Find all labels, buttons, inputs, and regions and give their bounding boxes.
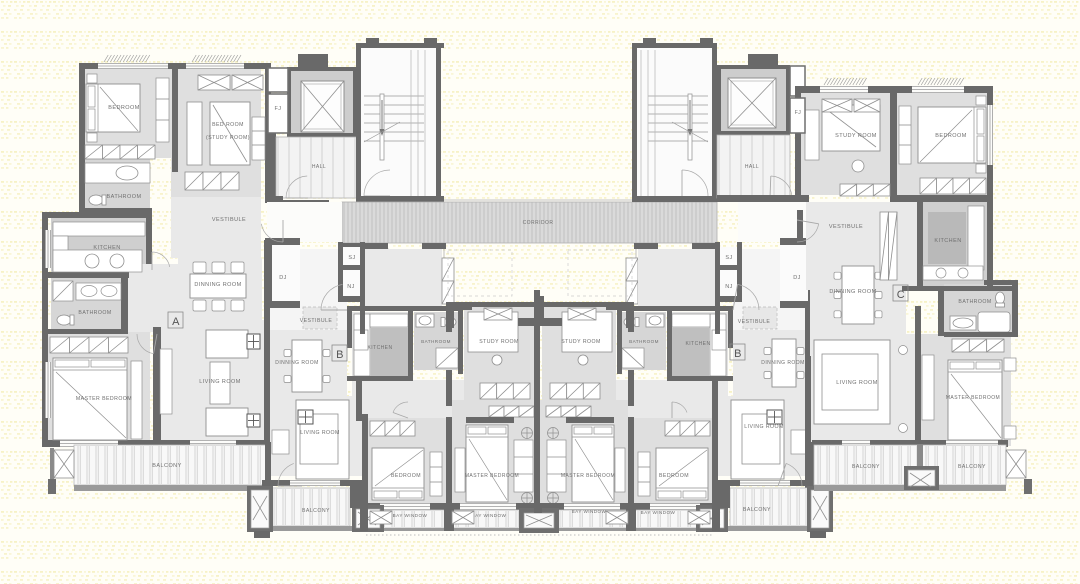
svg-text:DINNING ROOM: DINNING ROOM [761,360,804,366]
svg-text:BAY WINDOW: BAY WINDOW [393,513,428,518]
svg-text:(STUDY ROOM): (STUDY ROOM) [206,135,250,141]
svg-text:BALCONY: BALCONY [852,464,880,470]
svg-text:C: C [897,289,905,301]
svg-text:STUDY ROOM: STUDY ROOM [561,339,601,345]
svg-text:KITCHEN: KITCHEN [367,345,392,351]
svg-text:BAY WINDOW: BAY WINDOW [572,509,607,514]
svg-text:KITCHEN: KITCHEN [685,341,710,347]
svg-text:HALL: HALL [745,164,759,170]
svg-text:MASTER BEDROOM: MASTER BEDROOM [76,396,132,402]
svg-text:DINNING ROOM: DINNING ROOM [194,282,241,288]
svg-text:STUDY ROOM: STUDY ROOM [479,339,519,345]
svg-text:DINNING ROOM: DINNING ROOM [275,360,318,366]
svg-text:DJ: DJ [793,275,801,281]
svg-text:VESTIBULE: VESTIBULE [300,318,333,324]
svg-text:BATHROOM: BATHROOM [958,299,991,305]
svg-text:NJ: NJ [725,284,733,290]
svg-text:STUDY ROOM: STUDY ROOM [835,133,877,139]
svg-text:SJ: SJ [725,255,732,261]
svg-text:DJ: DJ [279,275,287,281]
svg-text:BEDROOM: BEDROOM [659,473,689,479]
svg-text:MASTER BEDROOM: MASTER BEDROOM [561,473,615,479]
svg-text:VESTIBULE: VESTIBULE [829,224,863,230]
svg-text:FJ: FJ [795,110,802,116]
svg-text:MASTER BEDROOM: MASTER BEDROOM [465,473,519,479]
svg-text:B: B [336,349,344,361]
svg-text:BALCONY: BALCONY [743,507,771,513]
svg-text:BALCONY: BALCONY [958,464,986,470]
svg-text:SJ: SJ [348,255,355,261]
svg-text:MASTER BEDROOM: MASTER BEDROOM [946,395,1000,401]
svg-text:KITCHEN: KITCHEN [934,238,961,244]
svg-text:BALCONY: BALCONY [302,508,330,514]
svg-text:LIVING ROOM: LIVING ROOM [199,379,241,385]
svg-text:BEDROOM: BEDROOM [935,133,967,139]
svg-text:NJ: NJ [347,284,355,290]
svg-text:A: A [172,316,180,328]
svg-text:DINNING ROOM: DINNING ROOM [829,289,876,295]
svg-text:LIVING ROOM: LIVING ROOM [836,380,878,386]
svg-text:HALL: HALL [312,164,326,170]
svg-text:BATHROOM: BATHROOM [107,194,142,200]
svg-text:KITCHEN: KITCHEN [93,245,120,251]
svg-text:B: B [734,348,742,360]
svg-text:LIVING ROOM: LIVING ROOM [744,424,784,430]
svg-text:CORRIDOR: CORRIDOR [523,220,554,226]
svg-text:BED ROOM: BED ROOM [212,122,244,128]
svg-text:FJ: FJ [274,106,281,112]
svg-text:BALCONY: BALCONY [152,463,181,469]
svg-text:LIVING ROOM: LIVING ROOM [300,430,340,436]
svg-text:BAY WINDOW: BAY WINDOW [472,513,507,518]
svg-text:VESTIBULE: VESTIBULE [212,217,246,223]
svg-text:BATHROOM: BATHROOM [421,339,451,344]
svg-text:BATHROOM: BATHROOM [78,310,111,316]
svg-text:BEDROOM: BEDROOM [391,473,421,479]
svg-text:BEDROOM: BEDROOM [108,105,140,111]
svg-text:BATHROOM: BATHROOM [629,339,659,344]
svg-text:BAY WINDOW: BAY WINDOW [641,510,676,515]
svg-text:VESTIBULE: VESTIBULE [738,319,771,325]
